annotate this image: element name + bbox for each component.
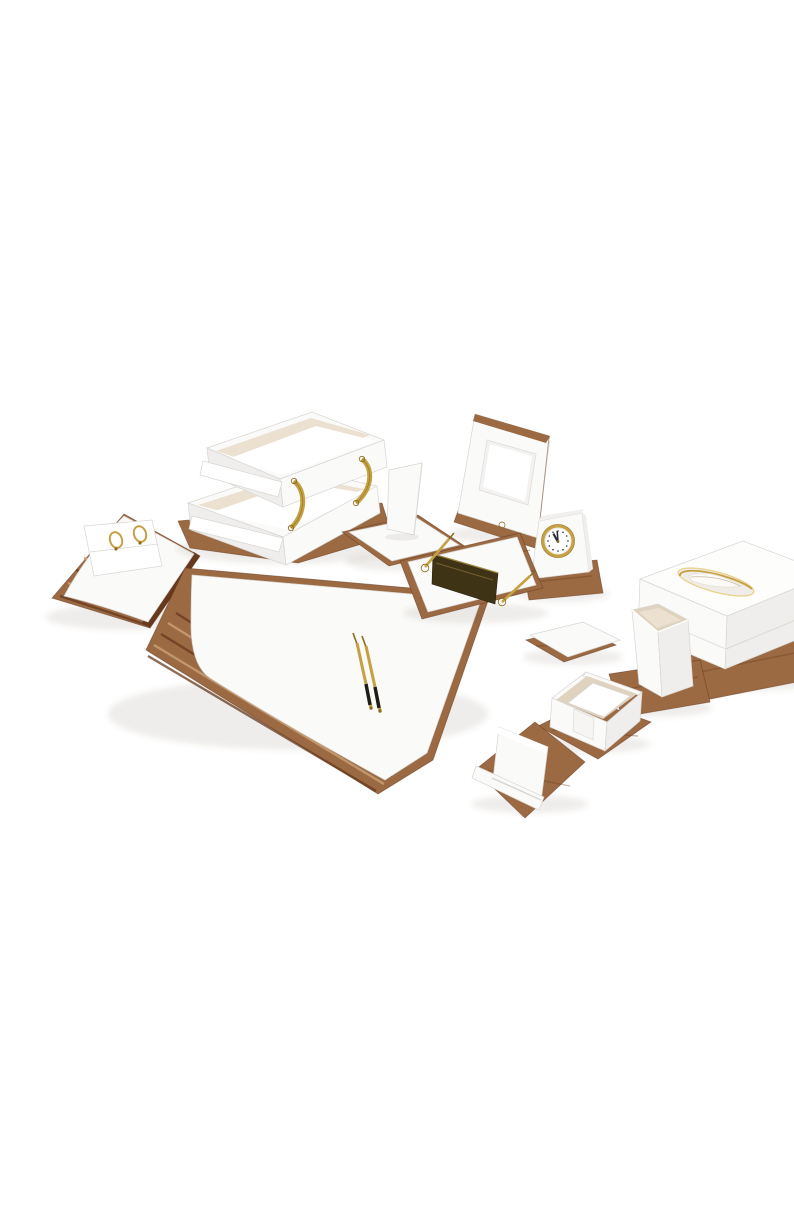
cup-front-right-face [658, 620, 693, 697]
desk-set-photo [40, 16, 794, 1207]
stand-plate-shadow [385, 534, 419, 541]
ring-screw [114, 547, 117, 550]
product-photo-stage: Product photo of a luxury desk accessory… [40, 16, 794, 1207]
photo-frame [450, 414, 550, 548]
clock-hand-pin [557, 540, 560, 543]
ring-screw [138, 541, 141, 544]
coaster [523, 622, 623, 665]
